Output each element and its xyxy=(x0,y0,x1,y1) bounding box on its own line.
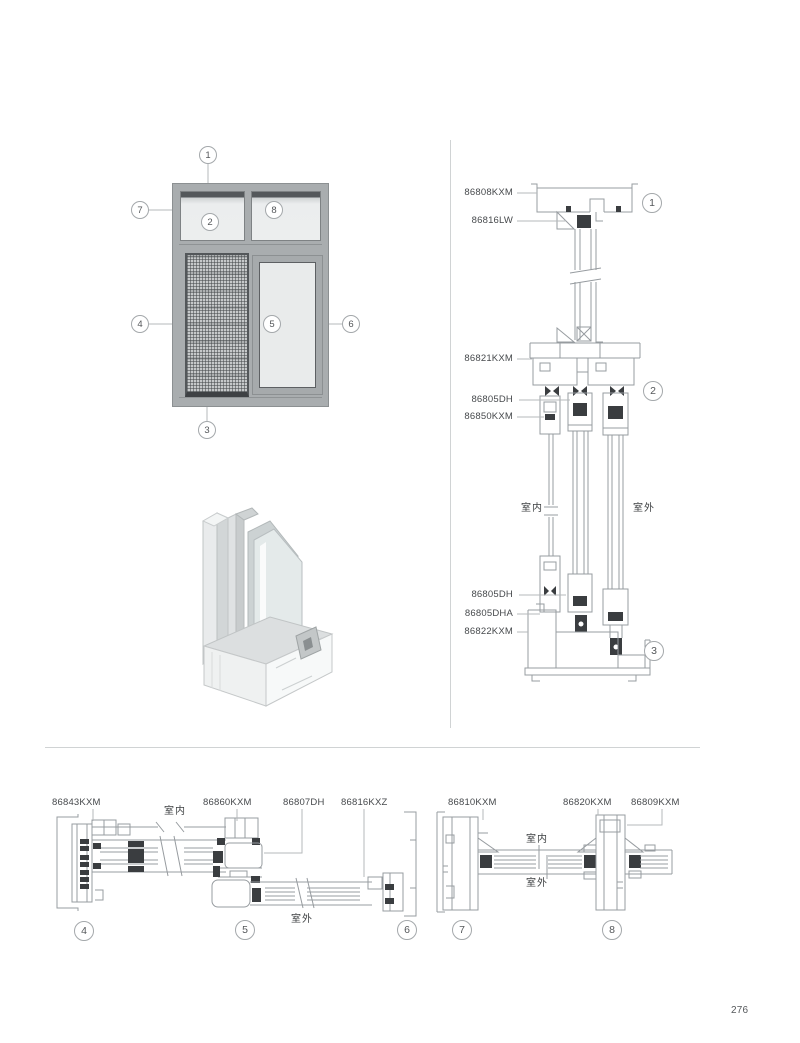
transom-edge xyxy=(179,244,322,245)
outdoor-sash-glass xyxy=(250,877,382,908)
top-right-fixed-panel xyxy=(251,191,321,241)
callout-3: 3 xyxy=(198,421,216,439)
end-jamb-86816kxz xyxy=(383,812,416,916)
label-86820kxm: 86820KXM xyxy=(563,797,612,808)
label-86816lw: 86816LW xyxy=(418,215,513,226)
outdoor-label-br: 室外 xyxy=(526,878,548,889)
head-frame-86808 xyxy=(531,184,638,212)
jamb-86810 xyxy=(437,812,498,912)
bottom-track-line xyxy=(179,397,322,398)
section-callout-8: 8 xyxy=(602,920,622,940)
bottom-right-leaders xyxy=(483,809,662,825)
label-86808kxm: 86808KXM xyxy=(418,187,513,198)
insect-screen-sash xyxy=(185,253,249,397)
section-callout-6: 6 xyxy=(397,920,417,940)
sash-1-86805 xyxy=(568,393,592,632)
label-86805dh-top: 86805DH xyxy=(418,394,513,405)
label-86822kxm: 86822KXM xyxy=(418,626,513,637)
transom-86821 xyxy=(530,343,640,385)
label-86809kxm: 86809KXM xyxy=(631,797,680,808)
label-86843kxm: 86843KXM xyxy=(52,797,101,808)
callout-5: 5 xyxy=(263,315,281,333)
section-callout-5: 5 xyxy=(235,920,255,940)
fixed-glass-86816 xyxy=(557,212,603,342)
jamb-86843 xyxy=(57,814,103,911)
divider-lines xyxy=(45,140,700,748)
label-86810kxm: 86810KXM xyxy=(448,797,497,808)
window-elevation xyxy=(172,183,329,407)
indoor-label-vs: 室内 xyxy=(505,503,543,514)
callout-2: 2 xyxy=(201,213,219,231)
callout-8: 8 xyxy=(265,201,283,219)
page-number: 276 xyxy=(731,1005,748,1016)
sill-86822 xyxy=(525,610,650,681)
label-86805dha: 86805DHA xyxy=(418,608,513,619)
callout-7: 7 xyxy=(131,201,149,219)
label-86816kxz: 86816KXZ xyxy=(341,797,388,808)
indoor-sash-glass xyxy=(92,836,226,876)
label-86821kxm: 86821KXM xyxy=(418,353,513,364)
profile-3d-image xyxy=(203,508,332,706)
left-glass-run xyxy=(478,845,596,879)
section-callout-1: 1 xyxy=(642,193,662,213)
section-callout-7: 7 xyxy=(452,920,472,940)
label-86807dh: 86807DH xyxy=(283,797,325,808)
indoor-label-bl: 室内 xyxy=(164,806,186,817)
outdoor-label-bl: 室外 xyxy=(291,914,313,925)
callout-4: 4 xyxy=(131,315,149,333)
section-callout-4: 4 xyxy=(74,921,94,941)
label-86850kxm: 86850KXM xyxy=(418,411,513,422)
section-callout-2: 2 xyxy=(643,381,663,401)
vertical-section-drawing xyxy=(517,184,650,681)
callout-1: 1 xyxy=(199,146,217,164)
callout-6: 6 xyxy=(342,315,360,333)
sash-2-86805 xyxy=(603,393,628,655)
catalog-page: 86808KXM 86816LW 86821KXM 86805DH 86850K… xyxy=(0,0,800,1043)
indoor-label-br: 室内 xyxy=(526,834,548,845)
bottom-left-section-drawing xyxy=(57,809,416,916)
outdoor-label-vs: 室外 xyxy=(633,503,655,514)
section-callout-3: 3 xyxy=(644,641,664,661)
bottom-right-section-drawing xyxy=(437,809,672,912)
label-86860kxm: 86860KXM xyxy=(203,797,252,808)
interlock-seals xyxy=(545,386,624,396)
indoor-rail xyxy=(92,820,226,835)
label-86805dh-bottom: 86805DH xyxy=(418,589,513,600)
technical-drawings xyxy=(0,0,800,1043)
